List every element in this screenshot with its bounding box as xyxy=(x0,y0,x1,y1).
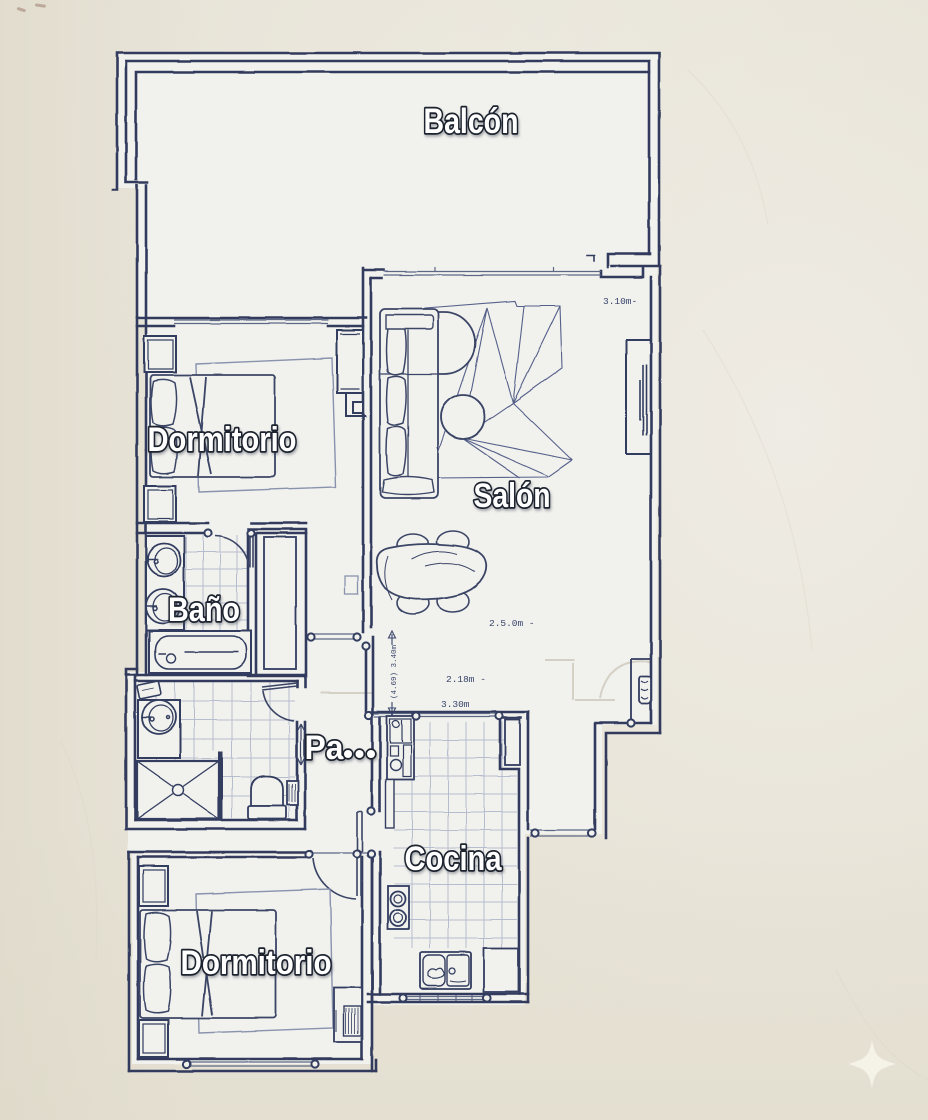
svg-text:Balcón: Balcón xyxy=(424,102,519,141)
svg-text:2.5.0m -: 2.5.0m - xyxy=(489,618,535,629)
svg-text:Dormitorio: Dormitorio xyxy=(148,421,297,459)
svg-text:Cocina: Cocina xyxy=(405,840,503,878)
svg-text:(4.69) 3.40m: (4.69) 3.40m xyxy=(391,644,399,699)
svg-text:2.18m -: 2.18m - xyxy=(446,674,486,685)
svg-text:Pa: Pa xyxy=(305,729,345,767)
svg-text:3.10m-: 3.10m- xyxy=(603,296,637,307)
svg-text:Salón: Salón xyxy=(474,477,551,515)
svg-text:Baño: Baño xyxy=(168,591,240,629)
svg-text:3.30m: 3.30m xyxy=(441,699,470,710)
svg-text:Dormitorio: Dormitorio xyxy=(181,944,332,982)
